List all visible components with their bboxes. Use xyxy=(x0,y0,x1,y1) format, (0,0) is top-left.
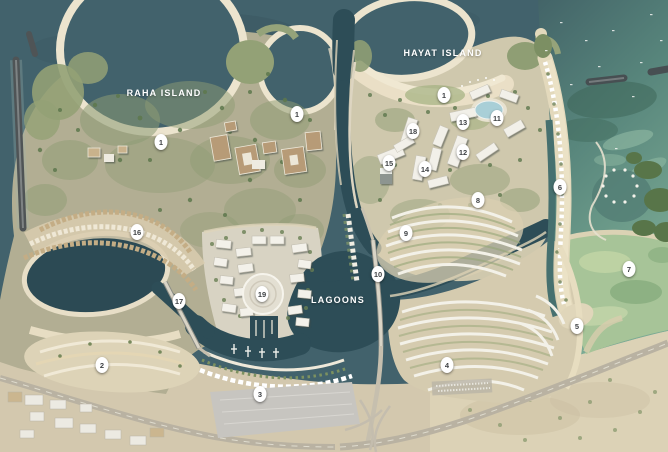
map-marker-3[interactable]: 3 xyxy=(254,386,267,402)
map-marker-12[interactable]: 12 xyxy=(457,144,470,160)
region-label-lagoons: LAGOONS xyxy=(311,295,365,305)
aerial-map-graphic xyxy=(0,0,668,452)
map-marker-19[interactable]: 19 xyxy=(256,286,269,302)
map-marker-16[interactable]: 16 xyxy=(131,224,144,240)
map-marker-15[interactable]: 15 xyxy=(383,155,396,171)
map-marker-1[interactable]: 1 xyxy=(155,134,168,150)
map-marker-17[interactable]: 17 xyxy=(173,293,186,309)
map-marker-1[interactable]: 1 xyxy=(291,106,304,122)
map-marker-5[interactable]: 5 xyxy=(571,318,584,334)
masterplan-map: RAHA ISLANDHAYAT ISLANDLAGOONS1112345678… xyxy=(0,0,668,452)
map-marker-4[interactable]: 4 xyxy=(441,357,454,373)
region-label-hayat-island: HAYAT ISLAND xyxy=(403,48,482,58)
map-marker-10[interactable]: 10 xyxy=(372,266,385,282)
map-marker-13[interactable]: 13 xyxy=(457,114,470,130)
map-marker-7[interactable]: 7 xyxy=(623,261,636,277)
map-marker-11[interactable]: 11 xyxy=(491,110,504,126)
map-marker-9[interactable]: 9 xyxy=(400,225,413,241)
map-marker-18[interactable]: 18 xyxy=(407,123,420,139)
map-marker-2[interactable]: 2 xyxy=(96,357,109,373)
map-marker-6[interactable]: 6 xyxy=(554,179,567,195)
map-marker-14[interactable]: 14 xyxy=(419,161,432,177)
map-marker-1[interactable]: 1 xyxy=(438,87,451,103)
region-label-raha-island: RAHA ISLAND xyxy=(127,88,202,98)
map-marker-8[interactable]: 8 xyxy=(472,192,485,208)
